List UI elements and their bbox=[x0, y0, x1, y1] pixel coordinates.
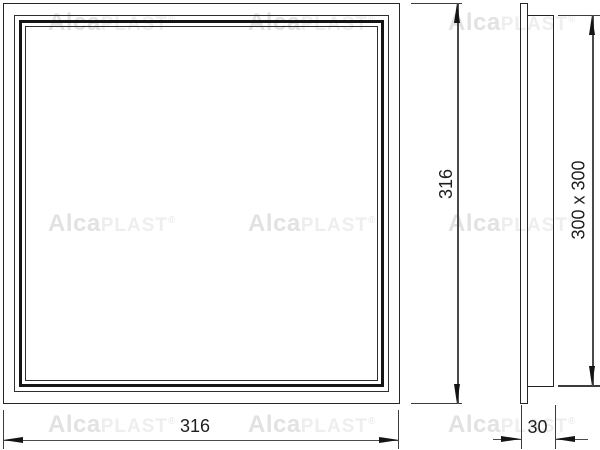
brand-watermark: AlcaPLAST® bbox=[448, 10, 576, 36]
arrowhead-right-icon bbox=[501, 436, 521, 442]
technical-drawing-canvas: AlcaPLAST® AlcaPLAST® AlcaPLAST® AlcaPLA… bbox=[0, 0, 600, 450]
arrowhead-left-icon bbox=[555, 436, 575, 442]
dim-front-width-label: 316 bbox=[165, 417, 225, 435]
dim-depth-label: 30 bbox=[517, 418, 558, 436]
side-body bbox=[527, 15, 554, 387]
registered-mark: ® bbox=[568, 416, 576, 427]
arrowhead-up-icon bbox=[454, 3, 460, 23]
brand-watermark: AlcaPLAST® bbox=[248, 412, 376, 438]
arrowhead-down-icon bbox=[454, 384, 460, 404]
watermark-plast: PLAST bbox=[301, 416, 368, 437]
brand-watermark: AlcaPLAST® bbox=[48, 412, 176, 438]
dimension-line bbox=[457, 3, 458, 404]
dimension-line bbox=[592, 15, 593, 386]
arrowhead-down-icon bbox=[589, 366, 595, 386]
watermark-alca: Alca bbox=[448, 210, 501, 237]
dim-front-height-label: 316 bbox=[437, 154, 455, 214]
dim-opening-size-label: 300 x 300 bbox=[570, 145, 588, 256]
arrowhead-up-icon bbox=[589, 15, 595, 35]
watermark-alca: Alca bbox=[48, 411, 101, 438]
dimension-line bbox=[3, 440, 399, 441]
arrowhead-right-icon bbox=[379, 437, 399, 443]
arrowhead-left-icon bbox=[3, 437, 23, 443]
registered-mark: ® bbox=[368, 416, 376, 427]
watermark-alca: Alca bbox=[448, 411, 501, 438]
watermark-plast: PLAST bbox=[101, 416, 168, 437]
brand-watermark: AlcaPLAST® bbox=[448, 211, 576, 237]
watermark-alca: Alca bbox=[248, 411, 301, 438]
front-door-panel-edge bbox=[25, 26, 378, 381]
